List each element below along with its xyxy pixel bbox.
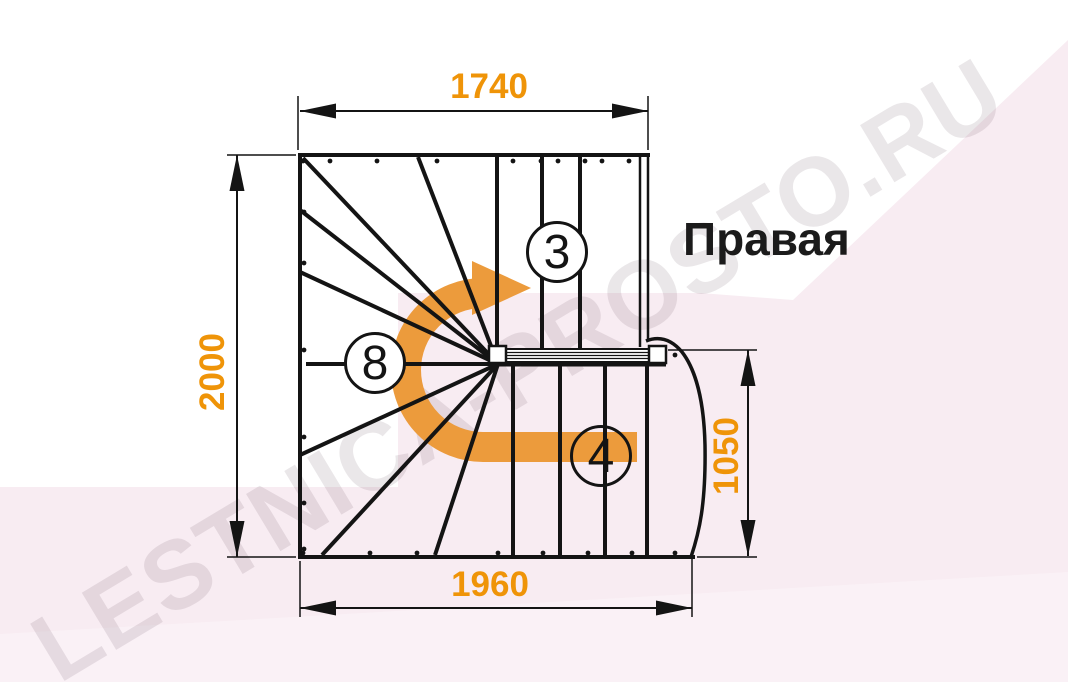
- dim-label-bottom: 1960: [400, 567, 580, 603]
- dim-label-left: 2000: [195, 282, 231, 462]
- dim-arrow-left-icon: [300, 104, 336, 119]
- dim-label-top: 1740: [399, 69, 579, 105]
- dim-label-right: 1050: [709, 366, 745, 546]
- dim-arrow-left-icon: [300, 601, 336, 616]
- newel-post-left: [489, 346, 506, 363]
- dim-arrow-up-icon: [230, 155, 245, 191]
- step-count-upper-flight: 3: [526, 221, 588, 283]
- step-count-lower-flight: 4: [570, 425, 632, 487]
- page-title: Правая: [683, 212, 850, 266]
- dim-arrow-right-icon: [656, 601, 692, 616]
- stair-plan-canvas: LESTNICA-PROSTO.RU: [0, 0, 1068, 682]
- newel-post-right: [649, 346, 666, 363]
- step-count-winders: 8: [344, 332, 406, 394]
- dim-arrow-right-icon: [612, 104, 648, 119]
- entry-curve: [646, 339, 705, 557]
- dim-arrow-down-icon: [230, 521, 245, 557]
- dimension-left: [227, 155, 296, 557]
- handrail: [489, 346, 666, 365]
- direction-arrow-head-icon: [472, 261, 531, 315]
